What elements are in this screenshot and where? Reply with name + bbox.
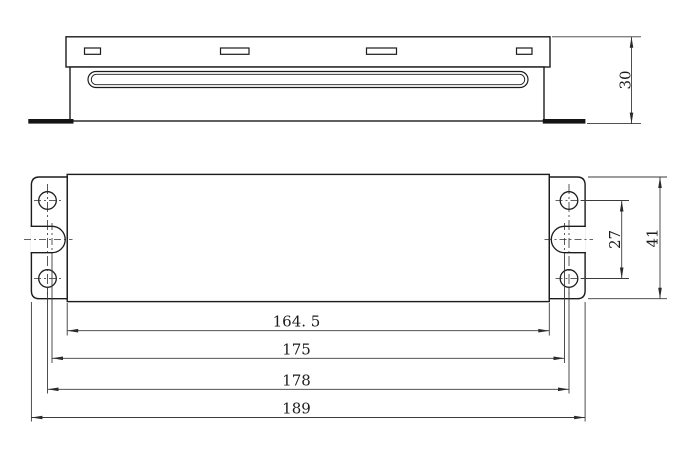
side-elevation-view (28, 37, 585, 124)
plan-view (24, 174, 593, 301)
dimension-overall-height: 30 (552, 37, 641, 124)
vent-slot-3 (367, 48, 397, 54)
dimension-text-164-5: 164. 5 (273, 313, 321, 331)
dimension-text-41: 41 (644, 228, 662, 247)
technical-drawing: 30 (0, 0, 697, 456)
vent-slot-2 (221, 48, 250, 54)
dimension-overall-length: 189 (31, 400, 585, 418)
vent-slot-1 (85, 48, 101, 54)
lid-outline (66, 37, 550, 67)
dimension-hole-row-spacing: 27 (606, 201, 624, 279)
dimension-slot-spacing: 175 (52, 341, 565, 359)
dimension-text-189: 189 (282, 400, 311, 418)
dimension-body-length: 164. 5 (67, 313, 549, 331)
dimension-text-175: 175 (282, 341, 311, 359)
vent-slot-4 (517, 48, 533, 54)
dimension-body-width: 41 (644, 177, 662, 299)
left-mounting-foot (28, 119, 73, 124)
right-mounting-foot (543, 119, 586, 124)
dimension-text-27: 27 (606, 230, 624, 249)
body-outline-plan (67, 174, 549, 301)
dimension-text-30: 30 (617, 70, 635, 89)
dimension-text-178: 178 (282, 372, 311, 390)
technical-drawing-page: 30 (0, 0, 697, 456)
dimension-hole-spacing: 178 (48, 372, 570, 390)
